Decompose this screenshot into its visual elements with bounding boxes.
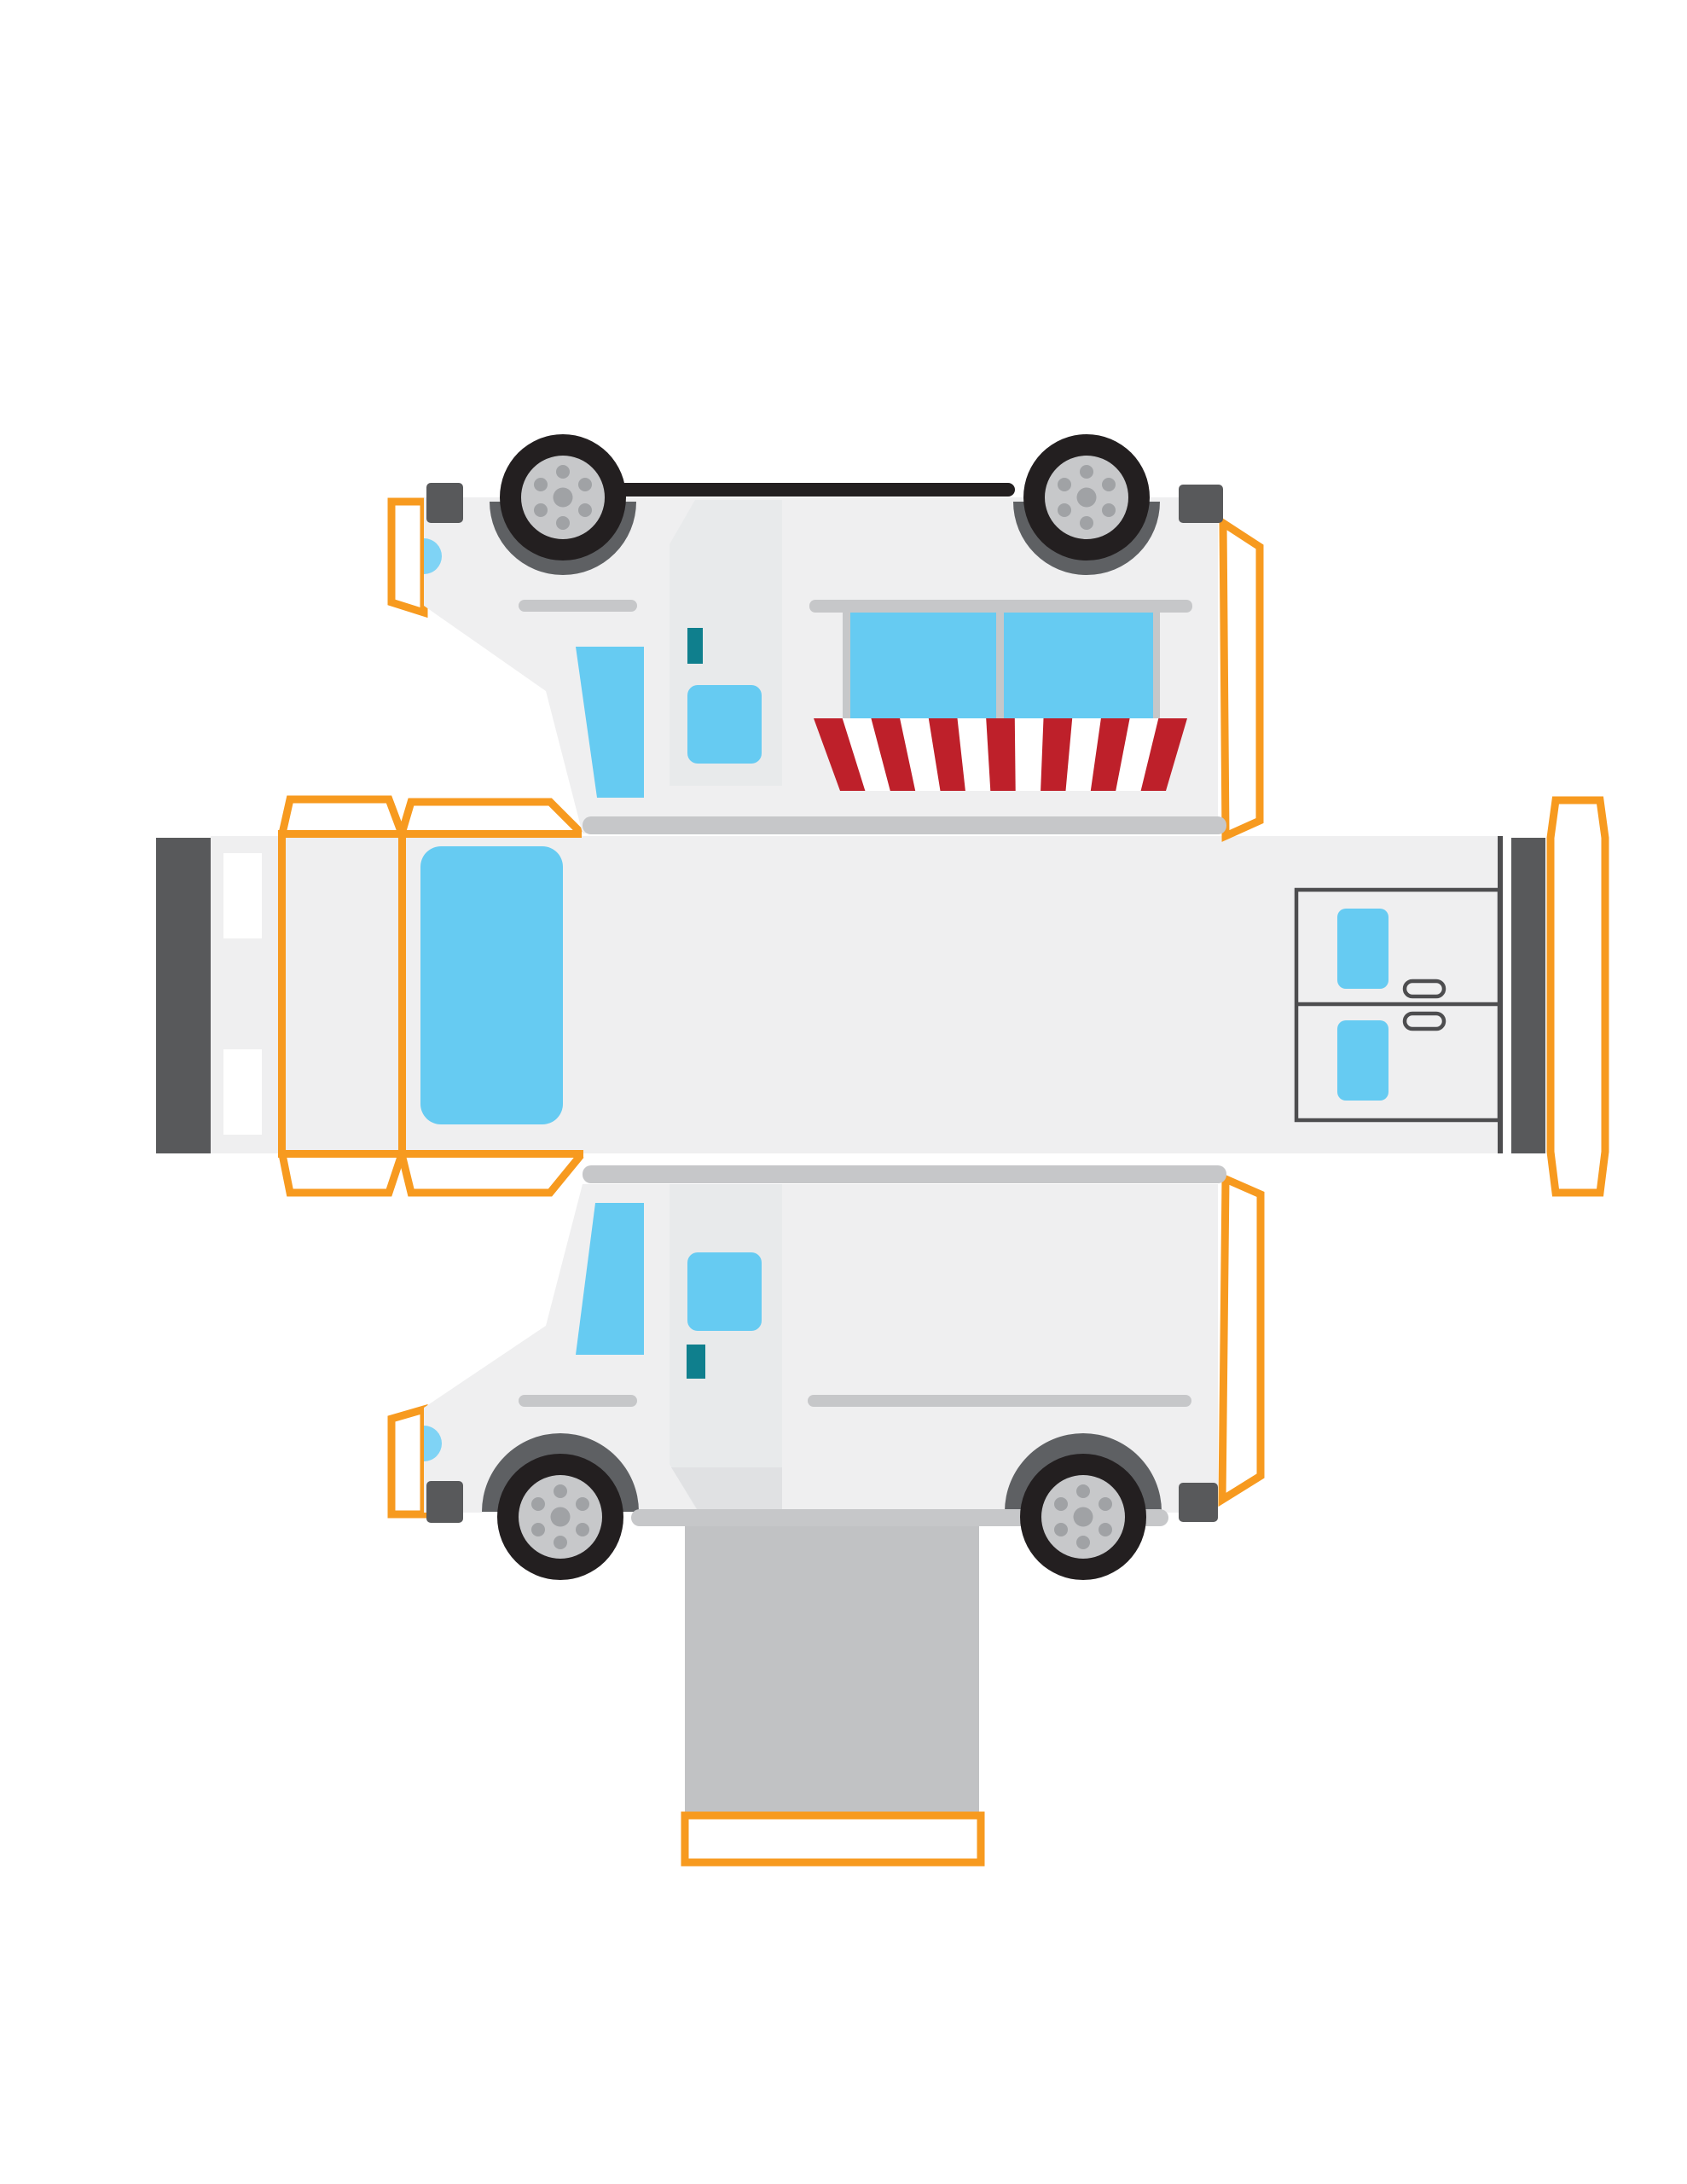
rear-door-window-2	[1337, 1020, 1388, 1101]
lug	[578, 478, 592, 491]
lug	[576, 1497, 589, 1511]
lug	[554, 1536, 567, 1549]
lug	[1058, 478, 1071, 491]
serving-window-sill	[809, 600, 1192, 613]
truck-template-figure	[0, 0, 1687, 2184]
lug	[1058, 503, 1071, 517]
door-handle-left	[687, 1345, 705, 1379]
lug	[1076, 1484, 1090, 1498]
wheel-front-left	[497, 1454, 623, 1580]
lug	[1080, 465, 1093, 479]
lug	[556, 465, 570, 479]
windshield-top-view	[420, 846, 563, 1124]
lug	[1054, 1497, 1068, 1511]
lug	[531, 1497, 545, 1511]
papercraft-sheet	[0, 0, 1687, 2184]
front-bumper-bar	[156, 838, 211, 1153]
lug	[1102, 503, 1116, 517]
lug	[1054, 1523, 1068, 1536]
roof-bar-right	[583, 816, 1226, 834]
lug	[1099, 1497, 1112, 1511]
lug-center	[1077, 488, 1097, 508]
lug	[576, 1523, 589, 1536]
serving-window-pane-2	[1004, 613, 1153, 718]
serving-window-divider	[996, 612, 1004, 719]
lug	[1080, 516, 1093, 530]
rear-bumper-bar	[1511, 838, 1545, 1153]
floor-flap-piece	[685, 1526, 981, 1862]
cab-trim-line-left	[519, 1395, 637, 1407]
lug	[1102, 478, 1116, 491]
front-headlight-cutout-bottom	[223, 1049, 262, 1135]
cab-trim-line-right	[519, 600, 637, 612]
serving-window-post-right	[1153, 612, 1160, 719]
lug	[556, 516, 570, 530]
serving-window-post-left	[843, 612, 850, 719]
door-window-right	[687, 685, 762, 764]
glue-tab-rear-left	[1222, 1179, 1261, 1500]
roof-bar-left	[583, 1165, 1226, 1183]
lug-center	[1074, 1507, 1093, 1527]
mud-flap-front-left	[426, 1481, 463, 1523]
serving-window	[809, 600, 1192, 719]
serving-window-pane-1	[850, 613, 996, 718]
lug-center	[551, 1507, 571, 1527]
floor-panel	[685, 1526, 979, 1815]
left-side-piece	[391, 1165, 1261, 1580]
glue-tab-top-1	[282, 799, 402, 834]
lug	[1076, 1536, 1090, 1549]
glue-tab-floor	[685, 1815, 981, 1862]
glue-tab-bottom-1	[282, 1154, 402, 1193]
chassis-line-right	[618, 483, 1015, 497]
fold-line-top	[278, 830, 582, 838]
lug	[578, 503, 592, 517]
lug	[534, 503, 548, 517]
mud-flap-front-right	[426, 483, 463, 523]
right-side-piece	[391, 434, 1260, 836]
wheel-rear-left	[1020, 1454, 1146, 1580]
fold-line-vertical-2	[398, 834, 406, 1158]
door-window-left	[687, 1252, 762, 1331]
glue-tab-top-2	[402, 802, 581, 834]
rear-door-window-1	[1337, 909, 1388, 989]
rear-fold-line	[1498, 836, 1503, 1153]
lug	[534, 478, 548, 491]
fold-line-bottom	[278, 1150, 583, 1158]
awning-stripe	[986, 718, 1016, 791]
roof-strip-piece	[156, 799, 1605, 1193]
door-handle-right	[687, 628, 703, 664]
fold-line-vertical-1	[278, 834, 286, 1158]
front-headlight-cutout-top	[223, 853, 262, 938]
lug	[531, 1523, 545, 1536]
door-panel-left	[670, 1184, 782, 1510]
awning	[814, 718, 1187, 791]
glue-tab-rear-right	[1223, 523, 1260, 836]
wheel-front-right	[500, 434, 626, 561]
lug	[554, 1484, 567, 1498]
mud-flap-rear-left	[1179, 1483, 1218, 1522]
mud-flap-rear-right	[1179, 485, 1223, 523]
glue-tab-front-right	[391, 502, 424, 613]
lug	[1099, 1523, 1112, 1536]
lug-center	[554, 488, 573, 508]
glue-tab-bottom-2	[402, 1154, 581, 1193]
wheel-rear-right	[1023, 434, 1150, 561]
glue-tab-front-left	[391, 1409, 424, 1514]
body-trim-line-left	[808, 1395, 1191, 1407]
glue-tab-rear	[1551, 800, 1605, 1193]
